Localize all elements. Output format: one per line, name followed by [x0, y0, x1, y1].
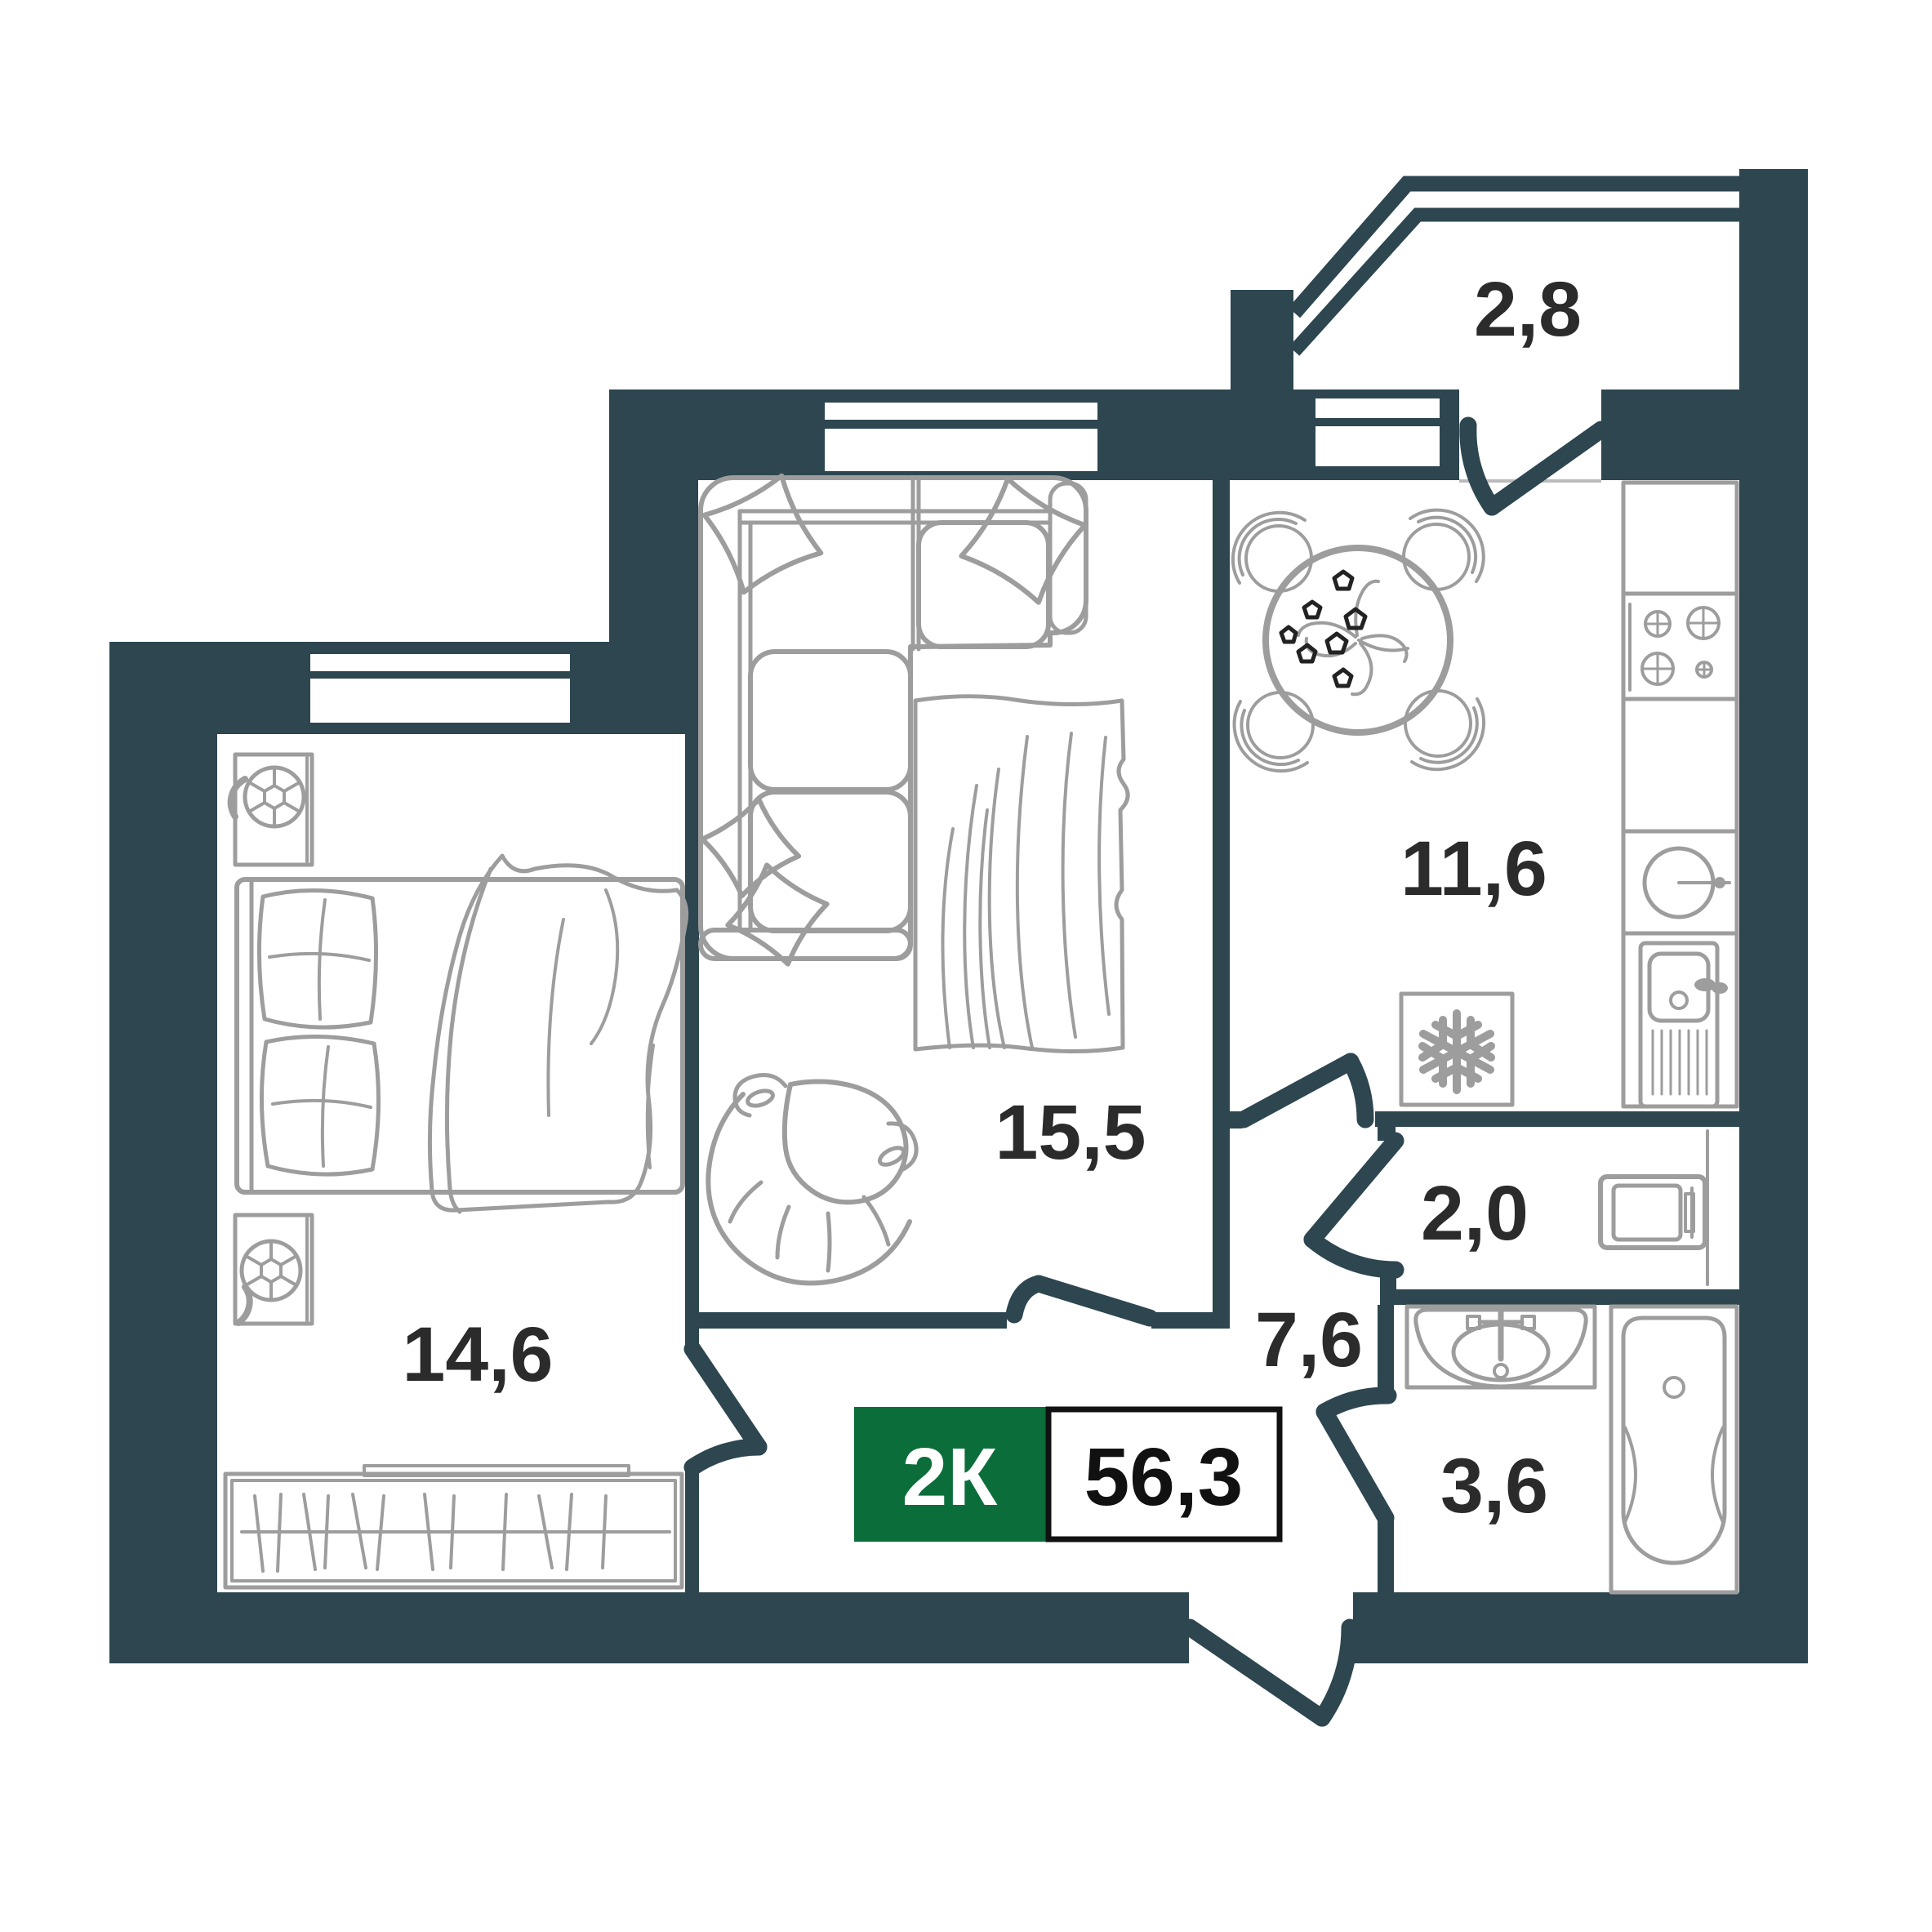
svg-text:2К: 2К	[902, 1431, 999, 1523]
svg-text:7,6: 7,6	[1255, 1297, 1363, 1383]
svg-text:14,6: 14,6	[403, 1311, 554, 1398]
svg-text:3,6: 3,6	[1440, 1443, 1548, 1529]
svg-text:11,6: 11,6	[1400, 826, 1547, 912]
svg-text:56,3: 56,3	[1084, 1431, 1244, 1523]
svg-text:2,8: 2,8	[1474, 266, 1582, 353]
svg-text:15,5: 15,5	[995, 1089, 1146, 1176]
svg-text:2,0: 2,0	[1421, 1170, 1529, 1257]
